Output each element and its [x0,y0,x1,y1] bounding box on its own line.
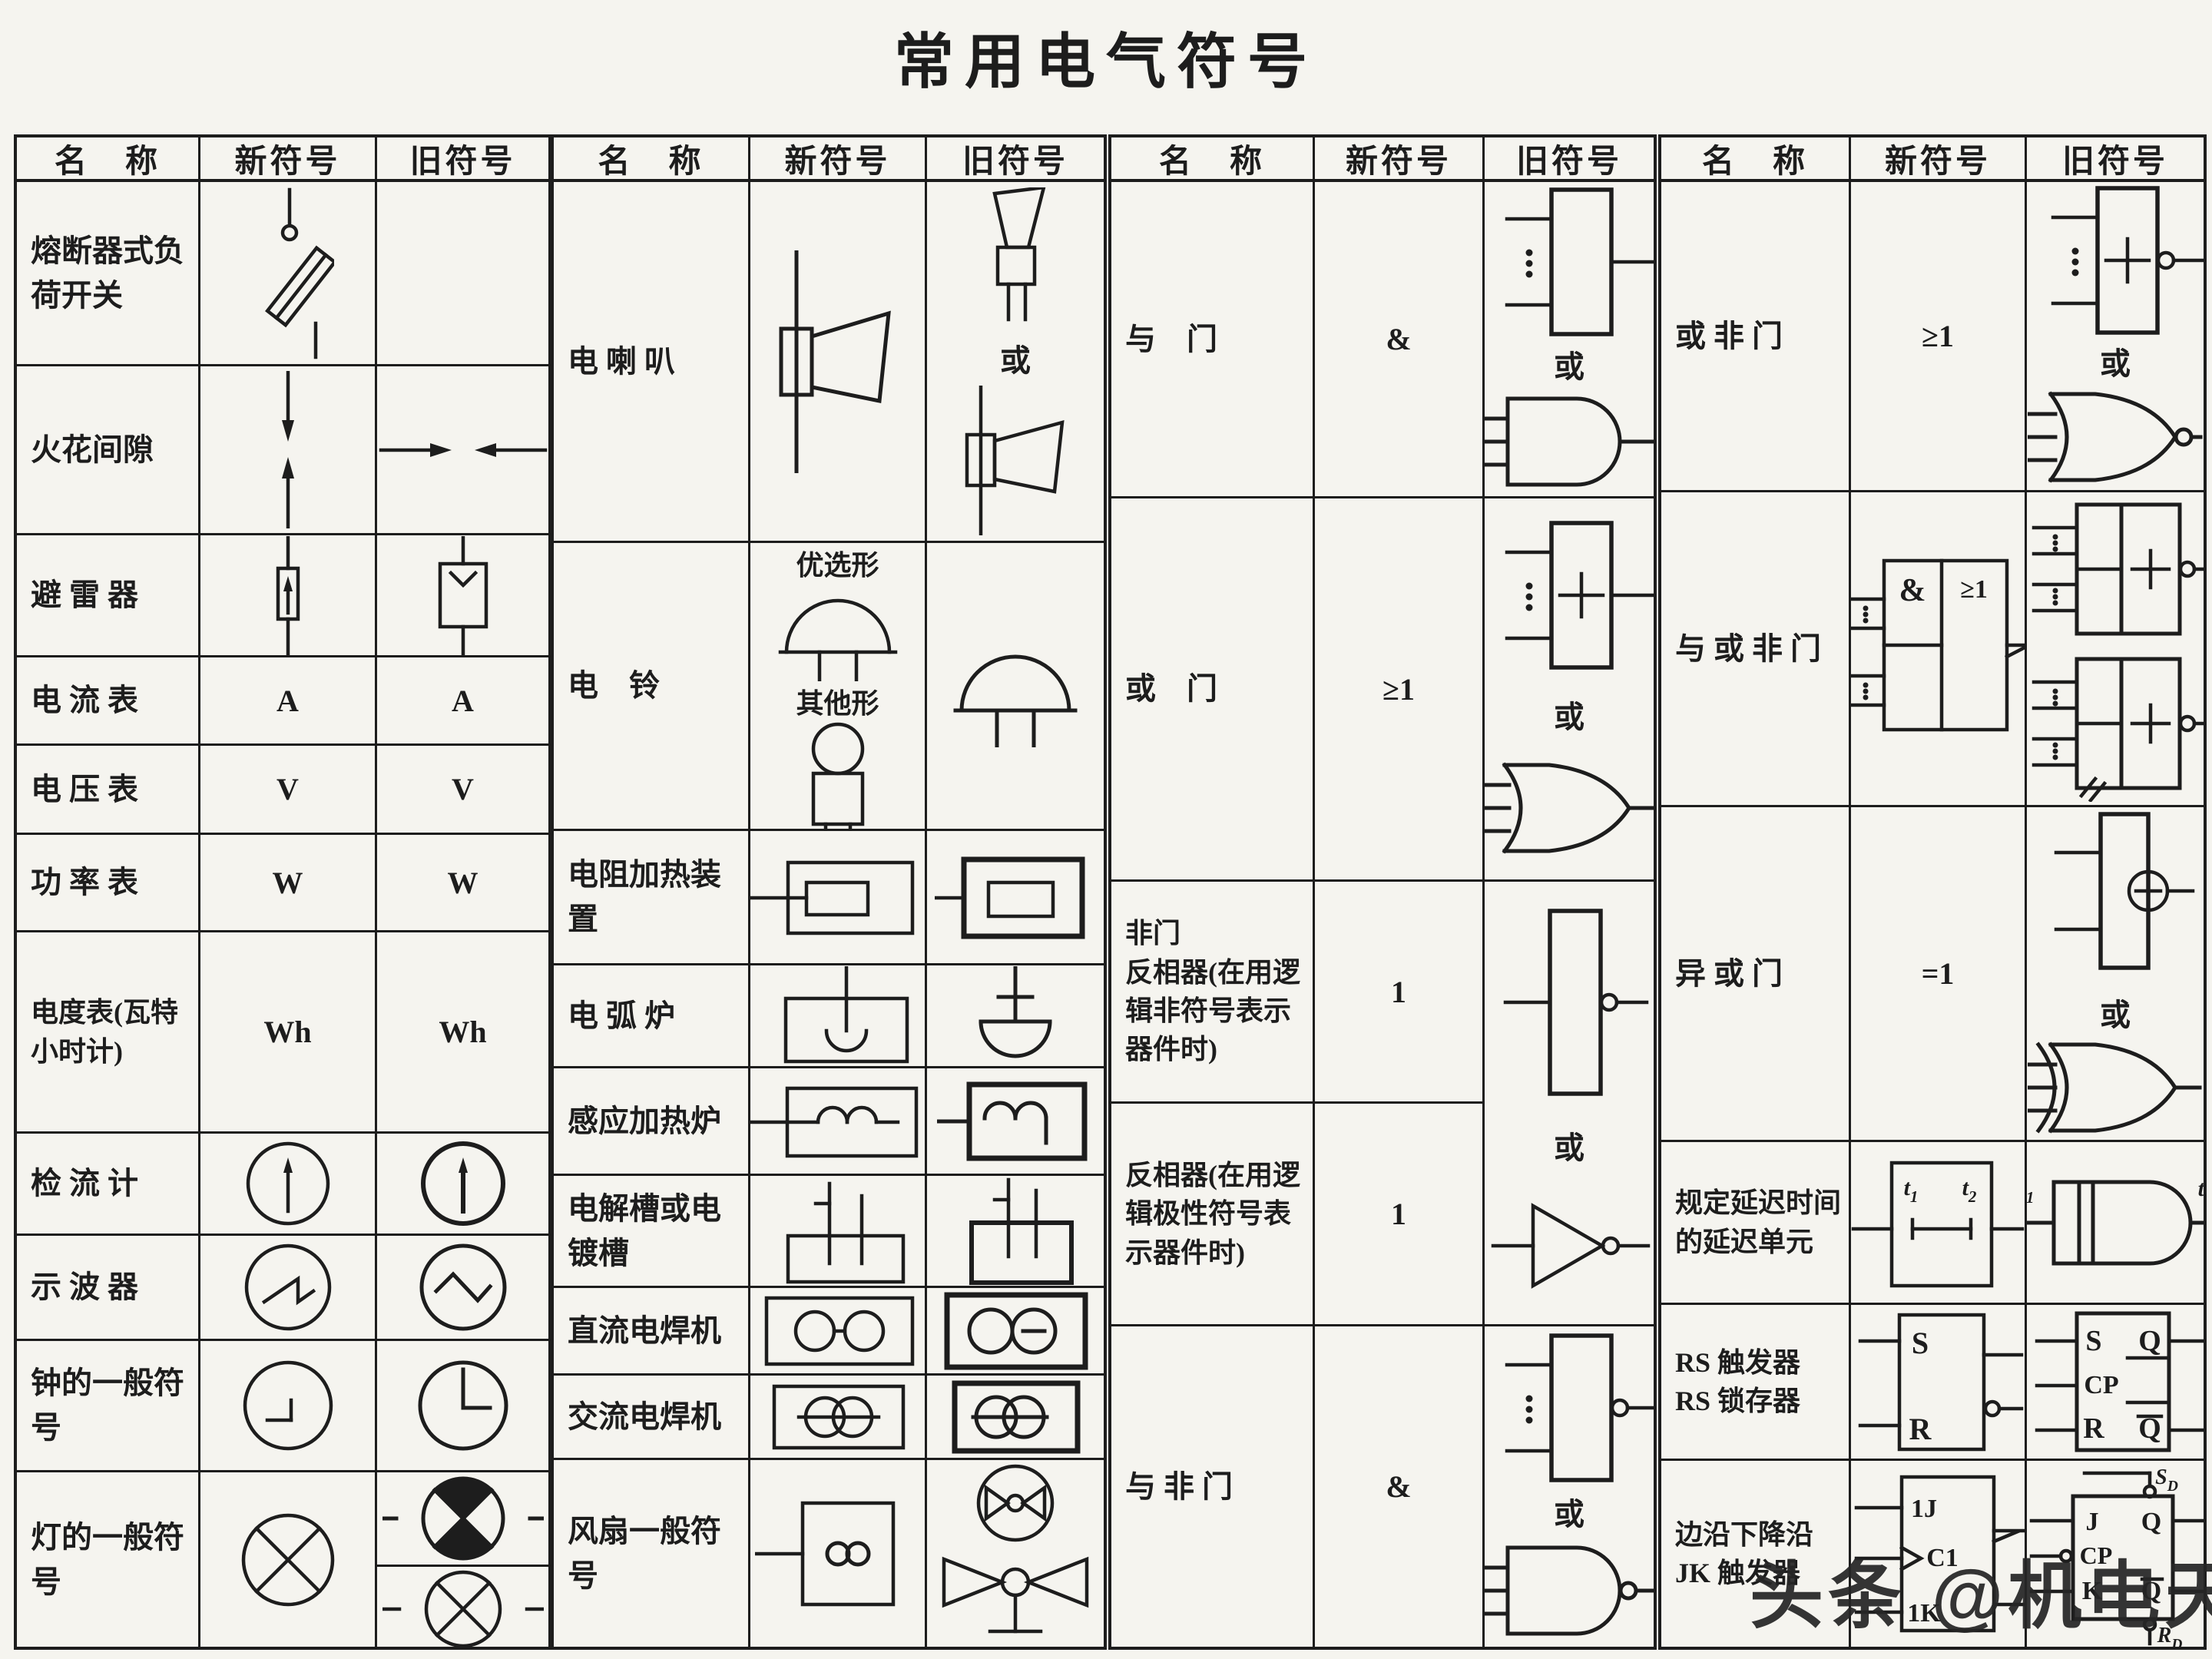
row-name: 直流电焊机 [554,1288,750,1376]
and-shape-icon [1485,389,1654,493]
new-symbol-cell: ≥1 [1315,498,1485,882]
old-symbol-cell: t1t2 [2027,1142,2204,1305]
spark-gap-h-icon [377,429,548,472]
svg-text:Q: Q [2141,1508,2161,1536]
row-name: 与 门 [1111,182,1315,498]
variant-label: 优选形 [796,543,879,583]
row-name: 电 喇 叭 [554,182,750,543]
dc-welder-old-icon [933,1289,1098,1373]
or-connector-label: 或 [1554,1123,1584,1167]
fan-prop-icon [935,1545,1096,1645]
or-connector-label: 或 [1554,1489,1584,1534]
old-symbol-cell [927,831,1104,965]
row-name: 或 非 门 [1661,182,1851,492]
not-old-box-icon [1488,906,1650,1098]
heater-old-icon [935,853,1096,942]
new-symbol-cell [200,1341,377,1472]
svg-text:S: S [1912,1326,1929,1360]
or-connector-label: V [452,771,474,807]
old-symbol-cell [377,366,548,535]
dc-welder-new-icon [750,1290,927,1372]
aon-old-icon [2027,650,2204,802]
new-symbol-cell [750,182,927,543]
column-header-old: 旧符号 [2027,137,2204,182]
row-name: 灯的一般符号 [17,1472,200,1647]
ac-welder-old-icon [941,1377,1091,1457]
row-name: 熔断器式负荷开关 [17,182,200,366]
new-symbol-cell [200,1472,377,1647]
new-symbol-cell [200,535,377,657]
or-connector-label: 或 [2100,339,2131,383]
row-name: 反相器(在用逻辑极性符号表示器件时) [1111,1104,1315,1326]
row-name: 或 门 [1111,498,1315,882]
ac-welder-new-icon [751,1377,924,1457]
new-symbol-cell: 1 [1315,882,1485,1104]
or-connector-label: ≥1 [1922,318,1954,354]
column-header-new: 新符号 [1851,137,2027,182]
clock-old-icon [416,1359,510,1452]
old-symbol-cell [927,1376,1104,1460]
fan-circle-icon [974,1462,1057,1545]
column-header-new: 新符号 [750,137,927,182]
or-connector-label: 1 [1391,1196,1406,1232]
column-header-old: 旧符号 [1485,137,1654,182]
column-header-name: 名 称 [554,137,750,182]
old-symbol-cell: 或 [1485,498,1654,882]
xor-old-box-icon [2035,808,2196,988]
old-symbol-cell [2027,492,2204,807]
horn-right-icon [761,250,915,473]
new-symbol-cell: & [1315,1326,1485,1647]
column-header-name: 名 称 [1661,137,1851,182]
new-symbol-cell: =1 [1851,807,2027,1142]
new-symbol-cell: Wh [200,932,377,1134]
inv-triangle-icon [1487,1192,1652,1300]
old-symbol-cell: 或 [1485,182,1654,498]
delay-new-icon: t1t2 [1851,1146,2026,1300]
or-connector-label: A [452,683,474,719]
galvanometer-icon [420,1141,506,1227]
svg-text:t2: t2 [1962,1175,1977,1206]
svg-text:CP: CP [2084,1371,2118,1399]
new-symbol-cell: &≥1 [1851,492,2027,807]
svg-text:SD: SD [2155,1465,2178,1495]
arc-furnace-old-icon [958,966,1073,1066]
old-symbol-cell: 或 [2027,182,2204,492]
row-name: 避 雷 器 [17,535,200,657]
old-box-icon [1485,1331,1654,1485]
or-connector-label: W [273,865,303,901]
new-symbol-cell [750,1460,927,1647]
new-symbol-cell [200,182,377,366]
new-symbol-cell [750,1176,927,1288]
row-name: 电 铃 [554,543,750,831]
new-symbol-cell [750,1068,927,1176]
old-symbol-cell: V [377,746,548,835]
old-symbol-cell [377,1472,548,1647]
or-connector-label: W [448,865,478,901]
new-symbol-cell: V [200,746,377,835]
column-header-old: 旧符号 [927,137,1104,182]
svg-text:S: S [2085,1325,2101,1357]
variant-label: 其他形 [796,681,879,721]
new-symbol-cell: W [200,835,377,932]
old-symbol-cell: A [377,657,548,746]
new-symbol-cell [750,1288,927,1376]
symbol-table-group-4: 名 称新符号旧符号或 非 门≥1或与 或 非 门&≥1异 或 门=1或规定延迟时… [1658,134,2207,1650]
row-name: 电解槽或电镀槽 [554,1176,750,1288]
or-connector-label: & [1386,321,1411,357]
aon-old-icon [2027,495,2204,647]
svg-text:t1: t1 [1904,1175,1919,1206]
old-symbol-cell [377,182,548,366]
new-symbol-cell: t1t2 [1851,1142,2027,1305]
row-name: 示 波 器 [17,1236,200,1341]
new-symbol-cell: ≥1 [1851,182,2027,492]
old-symbol-cell: 或 [927,182,1104,543]
or-connector-label: 或 [1000,336,1031,380]
svg-text:R: R [1909,1412,1932,1446]
electrolyzer-old-icon [949,1177,1083,1286]
and-shape-icon [1485,1538,1654,1642]
aon-new-icon: &≥1 [1851,547,2027,750]
row-name: 电度表(瓦特小时计) [17,932,200,1134]
svg-text:J: J [2086,1508,2099,1536]
row-name: 火花间隙 [17,366,200,535]
horn-right-icon [950,386,1081,535]
column-header-old: 旧符号 [377,137,548,182]
or-connector-label: 或 [1554,692,1584,737]
svg-text:1J: 1J [1911,1495,1937,1523]
old-box-icon [1485,518,1654,672]
new-symbol-cell [200,1134,377,1236]
watermark: 头条 @机电天下 [1750,1536,2212,1643]
scope-saw-icon [243,1242,333,1333]
symbol-table-group-3: 名 称新符号旧符号与 门&或或 门≥1或非门 反相器(在用逻辑非符号表示器件时)… [1108,134,1657,1650]
or-connector-label: ≥1 [1382,671,1415,707]
bell-dome-icon [773,583,902,681]
scanned-symbol-chart-page: 常用电气符号 名 称新符号旧符号熔断器式负荷开关火花间隙避 雷 器电 流 表AA… [0,0,2212,1659]
or-connector-label: 或 [1554,342,1584,386]
new-symbol-cell [750,965,927,1068]
spark-gap-v-icon [261,371,315,528]
new-symbol-cell: SR [1851,1305,2027,1461]
old-symbol-cell [927,1176,1104,1288]
arrester-new-icon [261,536,315,655]
old-box-icon [1485,185,1654,339]
old-symbol-cell [927,1460,1104,1647]
symbol-table-group-2: 名 称新符号旧符号电 喇 叭或电 铃优选形其他形电阻加热装置电 弧 炉感应加热炉… [551,134,1107,1650]
fuse-switch-icon [242,187,334,359]
symbol-table-group-1: 名 称新符号旧符号熔断器式负荷开关火花间隙避 雷 器电 流 表AA电 压 表VV… [14,134,551,1650]
or-connector-label: A [276,683,299,719]
new-symbol-cell [200,366,377,535]
column-header-name: 名 称 [17,137,200,182]
old-symbol-cell [927,965,1104,1068]
horn-up-icon [958,187,1073,329]
or-connector-label: & [1386,1469,1411,1505]
or-shape-icon [2028,1035,2203,1139]
row-name: 检 流 计 [17,1134,200,1236]
delay-old-icon: t1t2 [2027,1165,2204,1280]
lamp-x-leads-icon [382,1567,544,1647]
new-symbol-cell [200,1236,377,1341]
galvanometer-icon [245,1141,331,1227]
or-connector-label: Wh [439,1014,486,1050]
old-symbol-cell [377,535,548,657]
arrester-old-icon [425,536,502,655]
or-connector-label: 1 [1391,974,1406,1010]
new-symbol-cell: A [200,657,377,746]
page-title: 常用电气符号 [0,14,2212,100]
old-symbol-cell: 或 [2027,807,2204,1142]
old-symbol-cell: 或 [1485,1326,1654,1647]
lamp-ind-icon [382,1472,544,1565]
old-symbol-cell: W [377,835,548,932]
clock-new-icon [241,1359,335,1452]
row-name: RS 触发器 RS 锁存器 [1661,1305,1851,1461]
old-symbol-cell [927,543,1104,831]
old-symbol-cell: Wh [377,932,548,1134]
svg-text:≥1: ≥1 [1960,575,1988,604]
row-name: 电 流 表 [17,657,200,746]
electrolyzer-new-icon [759,1177,916,1285]
old-symbol-cell: SQCPRQ [2027,1305,2204,1461]
induction-new-icon [750,1076,927,1167]
old-box-icon [2027,184,2204,337]
new-symbol-cell: 优选形其他形 [750,543,927,831]
bell-dome-icon [948,624,1083,747]
row-name: 规定延迟时间的延迟单元 [1661,1142,1851,1305]
row-name: 与 或 非 门 [1661,492,1851,807]
row-name: 感应加热炉 [554,1068,750,1176]
row-name: 电 压 表 [17,746,200,835]
svg-text:t2: t2 [2198,1176,2204,1207]
old-symbol-cell [377,1236,548,1341]
arc-furnace-new-icon [755,966,920,1066]
or-connector-label: 或 [2100,990,2131,1035]
row-name: 电 弧 炉 [554,965,750,1068]
new-symbol-cell [750,1376,927,1460]
row-name: 风扇一般符号 [554,1460,750,1647]
heater-new-icon [750,853,926,942]
rs-old-icon: SQCPRQ [2027,1307,2204,1457]
or-shape-icon [1485,756,1654,859]
row-name: 交流电焊机 [554,1376,750,1460]
row-name: 异 或 门 [1661,807,1851,1142]
svg-text:t1: t1 [2027,1176,2034,1207]
column-header-new: 新符号 [1315,137,1485,182]
or-connector-label: =1 [1922,955,1955,992]
old-symbol-cell [377,1341,548,1472]
old-symbol-cell [927,1288,1104,1376]
old-symbol-cell: 或 [1485,882,1654,1326]
rs-new-icon: SR [1851,1307,2026,1457]
column-header-new: 新符号 [200,137,377,182]
new-symbol-cell [750,831,927,965]
bell-figure-icon [787,721,889,831]
row-name: 电阻加热装置 [554,831,750,965]
row-name: 非门 反相器(在用逻辑非符号表示器件时) [1111,882,1315,1104]
lamp-x-icon [240,1512,336,1608]
svg-text:Q: Q [2138,1325,2161,1357]
induction-old-icon [937,1078,1094,1164]
row-name: 钟的一般符号 [17,1341,200,1472]
new-symbol-cell: & [1315,182,1485,498]
old-symbol-cell [927,1068,1104,1176]
scope-tri-icon [418,1242,508,1333]
column-header-name: 名 称 [1111,137,1315,182]
new-symbol-cell: 1 [1315,1104,1485,1326]
svg-text:&: & [1899,573,1926,608]
or-shape-icon [2028,385,2203,488]
row-name: 功 率 表 [17,835,200,932]
or-connector-label: Wh [263,1014,311,1050]
or-connector-label: V [276,771,299,807]
fan-new-icon [755,1492,920,1615]
row-name: 与 非 门 [1111,1326,1315,1647]
old-symbol-cell [377,1134,548,1236]
svg-text:R: R [2083,1412,2104,1445]
